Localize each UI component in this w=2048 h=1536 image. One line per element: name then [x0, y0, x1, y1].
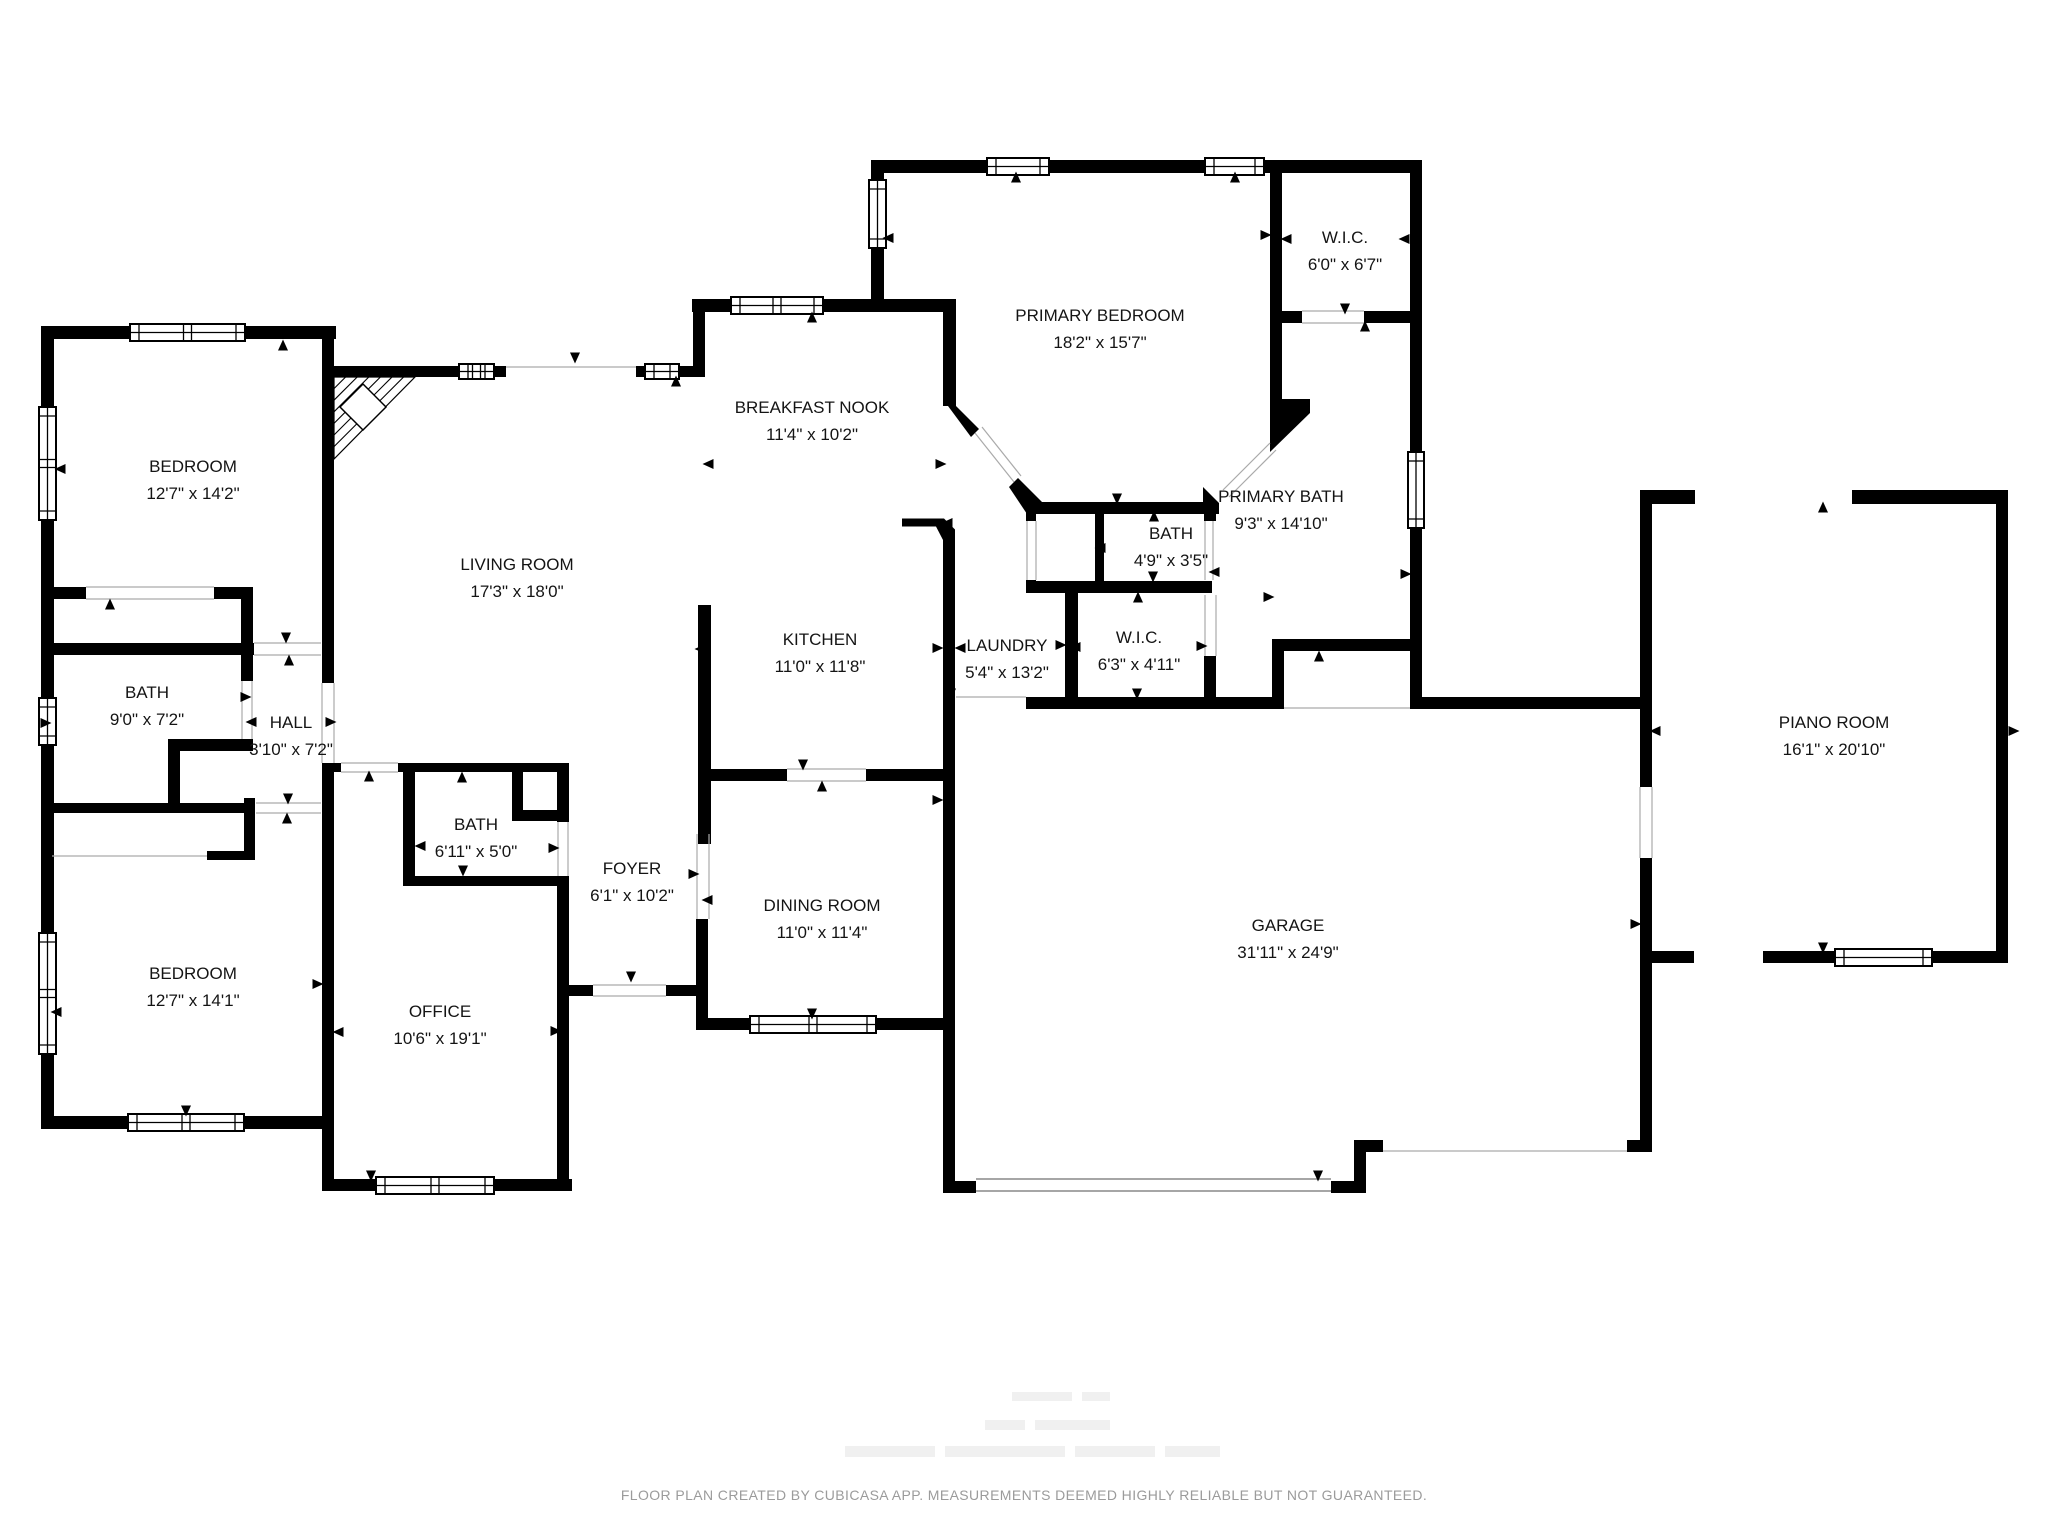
svg-text:17'3" x 18'0": 17'3" x 18'0" — [470, 582, 563, 601]
svg-text:6'11" x 5'0": 6'11" x 5'0" — [435, 842, 518, 861]
svg-text:6'3" x 4'11": 6'3" x 4'11" — [1098, 655, 1181, 674]
svg-text:W.I.C.: W.I.C. — [1116, 628, 1162, 647]
svg-text:HALL: HALL — [270, 713, 313, 732]
svg-text:W.I.C.: W.I.C. — [1322, 228, 1368, 247]
svg-text:4'9" x 3'5": 4'9" x 3'5" — [1134, 551, 1208, 570]
svg-text:6'1" x 10'2": 6'1" x 10'2" — [590, 886, 674, 905]
svg-text:BEDROOM: BEDROOM — [149, 457, 237, 476]
svg-text:3'10" x 7'2": 3'10" x 7'2" — [249, 740, 333, 759]
svg-text:11'0" x 11'8": 11'0" x 11'8" — [775, 657, 866, 676]
svg-text:18'2" x 15'7": 18'2" x 15'7" — [1053, 333, 1146, 352]
svg-text:16'1" x 20'10": 16'1" x 20'10" — [1783, 740, 1886, 759]
svg-text:KITCHEN: KITCHEN — [783, 630, 858, 649]
svg-text:OFFICE: OFFICE — [409, 1002, 471, 1021]
svg-text:11'4" x 10'2": 11'4" x 10'2" — [766, 425, 858, 444]
svg-text:FOYER: FOYER — [603, 859, 662, 878]
svg-text:31'11" x 24'9": 31'11" x 24'9" — [1237, 943, 1338, 962]
svg-text:LAUNDRY: LAUNDRY — [967, 636, 1048, 655]
svg-text:BATH: BATH — [125, 683, 169, 702]
svg-text:BEDROOM: BEDROOM — [149, 964, 237, 983]
svg-text:10'6" x 19'1": 10'6" x 19'1" — [393, 1029, 486, 1048]
svg-text:BREAKFAST NOOK: BREAKFAST NOOK — [735, 398, 890, 417]
svg-text:11'0" x 11'4": 11'0" x 11'4" — [777, 923, 868, 942]
svg-text:PRIMARY BATH: PRIMARY BATH — [1218, 487, 1344, 506]
svg-text:5'4" x 13'2": 5'4" x 13'2" — [965, 663, 1049, 682]
svg-text:DINING ROOM: DINING ROOM — [763, 896, 880, 915]
svg-text:GARAGE: GARAGE — [1252, 916, 1325, 935]
svg-text:PRIMARY BEDROOM: PRIMARY BEDROOM — [1015, 306, 1184, 325]
svg-text:6'0" x 6'7": 6'0" x 6'7" — [1308, 255, 1382, 274]
svg-text:BATH: BATH — [454, 815, 498, 834]
svg-text:PIANO ROOM: PIANO ROOM — [1779, 713, 1890, 732]
svg-text:BATH: BATH — [1149, 524, 1193, 543]
svg-text:LIVING ROOM: LIVING ROOM — [460, 555, 573, 574]
svg-text:FLOOR PLAN CREATED BY CUBICASA: FLOOR PLAN CREATED BY CUBICASA APP. MEAS… — [621, 1487, 1427, 1503]
svg-text:12'7" x 14'1": 12'7" x 14'1" — [146, 991, 239, 1010]
svg-text:9'3" x 14'10": 9'3" x 14'10" — [1234, 514, 1327, 533]
svg-text:9'0" x 7'2": 9'0" x 7'2" — [110, 710, 184, 729]
svg-text:12'7" x 14'2": 12'7" x 14'2" — [146, 484, 239, 503]
